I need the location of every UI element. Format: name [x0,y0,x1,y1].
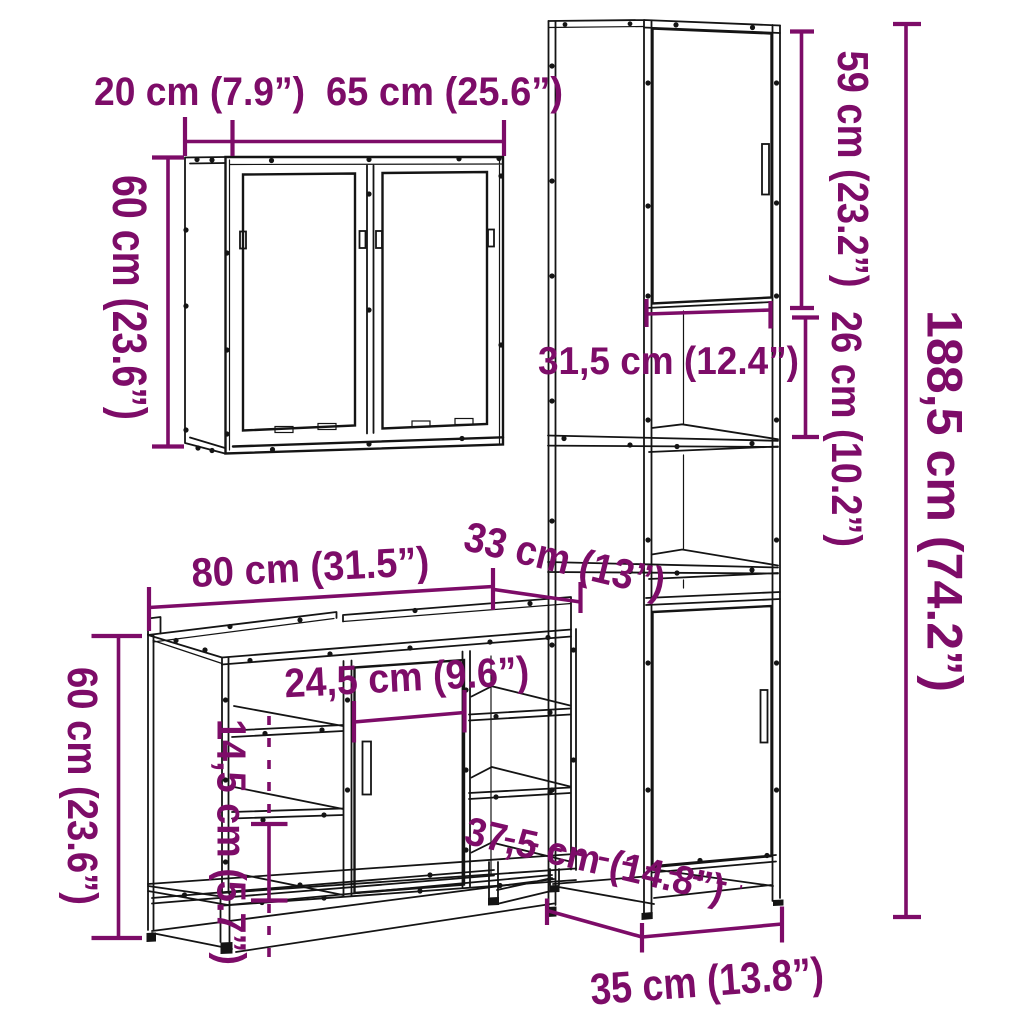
svg-text:60 cm (23.6”): 60 cm (23.6”) [102,175,155,420]
svg-text:20 cm (7.9”): 20 cm (7.9”) [94,70,305,114]
svg-text:26 cm (10.2”): 26 cm (10.2”) [822,311,870,547]
svg-text:65 cm (25.6”): 65 cm (25.6”) [326,70,563,114]
svg-text:14,5 cm (5.7”): 14,5 cm (5.7”) [209,719,255,965]
svg-text:59 cm (23.2”): 59 cm (23.2”) [828,51,877,288]
svg-text:31,5 cm (12.4”): 31,5 cm (12.4”) [538,340,799,383]
svg-text:60 cm (23.6”): 60 cm (23.6”) [58,667,105,905]
svg-text:188,5 cm (74.2”): 188,5 cm (74.2”) [917,310,973,692]
